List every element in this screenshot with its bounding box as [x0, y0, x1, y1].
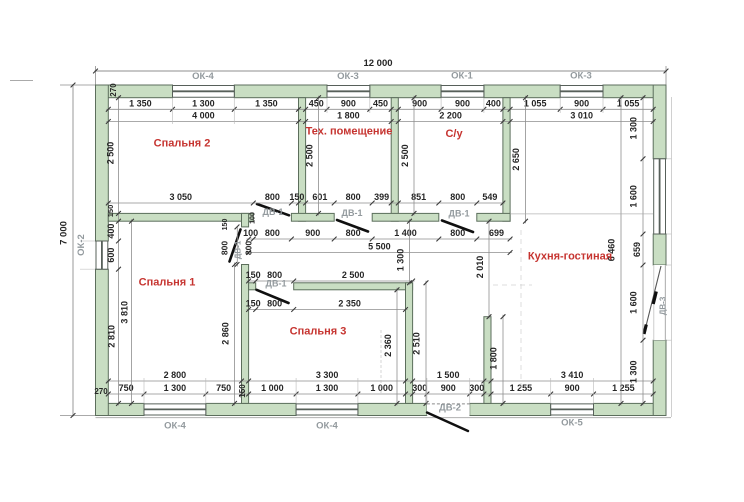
svg-text:1 300: 1 300 — [316, 383, 339, 393]
svg-text:1 300: 1 300 — [629, 117, 639, 140]
svg-text:2 500: 2 500 — [106, 142, 116, 165]
svg-text:1 350: 1 350 — [129, 98, 152, 108]
svg-text:1 055: 1 055 — [524, 98, 547, 108]
svg-text:900: 900 — [565, 383, 580, 393]
svg-text:Спальня 1: Спальня 1 — [139, 277, 196, 289]
svg-text:2 650: 2 650 — [511, 148, 521, 171]
svg-text:1 350: 1 350 — [255, 98, 278, 108]
svg-text:ДВ-2: ДВ-2 — [439, 403, 461, 414]
svg-text:270: 270 — [109, 83, 118, 97]
svg-text:270: 270 — [94, 387, 108, 396]
svg-text:Спальня 2: Спальня 2 — [154, 138, 211, 150]
svg-text:300: 300 — [469, 383, 484, 393]
svg-text:150: 150 — [246, 270, 261, 280]
svg-text:Кухня-гостиная: Кухня-гостиная — [528, 251, 612, 263]
svg-text:ДВ-1: ДВ-1 — [342, 208, 363, 218]
svg-text:ОК-4: ОК-4 — [164, 421, 186, 432]
svg-text:2 360: 2 360 — [383, 334, 393, 357]
svg-text:150: 150 — [238, 384, 247, 398]
svg-text:Спальня 3: Спальня 3 — [290, 326, 347, 338]
svg-text:659: 659 — [632, 242, 642, 257]
svg-text:800: 800 — [346, 228, 361, 238]
svg-text:1 600: 1 600 — [629, 185, 639, 208]
svg-text:100: 100 — [243, 228, 258, 238]
svg-text:399: 399 — [374, 192, 389, 202]
svg-text:1 300: 1 300 — [396, 249, 406, 272]
svg-text:ДВ-1: ДВ-1 — [234, 240, 243, 259]
svg-text:ДВ-1: ДВ-1 — [449, 209, 470, 219]
svg-text:2 500: 2 500 — [305, 144, 315, 167]
svg-text:3 300: 3 300 — [316, 370, 339, 380]
svg-text:800: 800 — [450, 228, 465, 238]
svg-text:ОК-3: ОК-3 — [570, 71, 592, 82]
svg-text:ОК-5: ОК-5 — [561, 418, 583, 429]
svg-text:800: 800 — [265, 192, 280, 202]
svg-text:12 000: 12 000 — [363, 58, 392, 69]
svg-text:900: 900 — [305, 228, 320, 238]
svg-text:5 500: 5 500 — [368, 242, 391, 252]
svg-text:900: 900 — [574, 98, 589, 108]
svg-text:2 200: 2 200 — [439, 111, 462, 121]
svg-text:2 860: 2 860 — [221, 322, 231, 345]
svg-text:800: 800 — [346, 192, 361, 202]
svg-text:1 800: 1 800 — [489, 347, 499, 370]
svg-text:3 810: 3 810 — [120, 301, 130, 324]
svg-text:400: 400 — [486, 98, 501, 108]
svg-text:С/у: С/у — [445, 128, 463, 140]
svg-text:800: 800 — [244, 241, 254, 255]
svg-text:1 300: 1 300 — [192, 98, 215, 108]
svg-text:ОК-4: ОК-4 — [316, 421, 338, 432]
svg-text:1 000: 1 000 — [261, 383, 284, 393]
svg-text:699: 699 — [489, 228, 504, 238]
svg-text:1 600: 1 600 — [629, 291, 639, 314]
svg-text:800: 800 — [265, 228, 280, 238]
svg-text:900: 900 — [341, 98, 356, 108]
svg-text:1 300: 1 300 — [629, 361, 639, 384]
svg-text:150: 150 — [246, 299, 261, 309]
svg-text:7 000: 7 000 — [59, 221, 70, 245]
svg-text:ДВ-1: ДВ-1 — [263, 207, 284, 217]
svg-text:ОК-2: ОК-2 — [76, 234, 87, 256]
svg-text:1 000: 1 000 — [370, 383, 393, 393]
svg-text:900: 900 — [441, 383, 456, 393]
svg-text:2 810: 2 810 — [107, 325, 117, 348]
svg-text:ОК-3: ОК-3 — [337, 71, 359, 82]
svg-text:150: 150 — [222, 219, 229, 231]
svg-text:1 500: 1 500 — [437, 370, 460, 380]
svg-text:800: 800 — [220, 241, 230, 255]
svg-text:549: 549 — [482, 192, 497, 202]
svg-text:1 255: 1 255 — [612, 383, 635, 393]
svg-text:601: 601 — [312, 192, 327, 202]
svg-text:ОК-1: ОК-1 — [451, 71, 473, 82]
svg-text:150: 150 — [289, 192, 304, 202]
svg-text:600: 600 — [106, 248, 116, 263]
svg-text:1 055: 1 055 — [617, 98, 640, 108]
svg-text:2 510: 2 510 — [412, 332, 422, 355]
svg-text:2 500: 2 500 — [342, 270, 365, 280]
svg-text:300: 300 — [412, 383, 427, 393]
svg-text:150: 150 — [106, 205, 115, 218]
svg-text:Тех. помещение: Тех. помещение — [306, 126, 393, 138]
svg-text:1 400: 1 400 — [394, 228, 417, 238]
svg-text:2 800: 2 800 — [164, 370, 187, 380]
svg-text:900: 900 — [412, 98, 427, 108]
svg-text:800: 800 — [267, 299, 282, 309]
svg-text:4 000: 4 000 — [192, 111, 215, 121]
svg-text:2 350: 2 350 — [338, 299, 361, 309]
svg-text:400: 400 — [106, 224, 116, 239]
svg-text:2 010: 2 010 — [475, 256, 485, 279]
svg-text:ДВ-3: ДВ-3 — [659, 296, 668, 315]
svg-text:ДВ-1: ДВ-1 — [266, 279, 287, 289]
svg-text:450: 450 — [373, 98, 388, 108]
svg-text:3 050: 3 050 — [170, 192, 193, 202]
svg-text:851: 851 — [411, 192, 426, 202]
svg-text:3 410: 3 410 — [561, 370, 584, 380]
svg-text:2 500: 2 500 — [400, 144, 410, 167]
svg-text:900: 900 — [455, 98, 470, 108]
svg-text:800: 800 — [450, 192, 465, 202]
svg-text:3 010: 3 010 — [570, 111, 593, 121]
svg-text:ОК-4: ОК-4 — [192, 71, 214, 82]
svg-text:1 800: 1 800 — [337, 111, 360, 121]
svg-text:100: 100 — [250, 212, 257, 224]
svg-text:1 300: 1 300 — [164, 383, 187, 393]
svg-text:750: 750 — [216, 383, 231, 393]
